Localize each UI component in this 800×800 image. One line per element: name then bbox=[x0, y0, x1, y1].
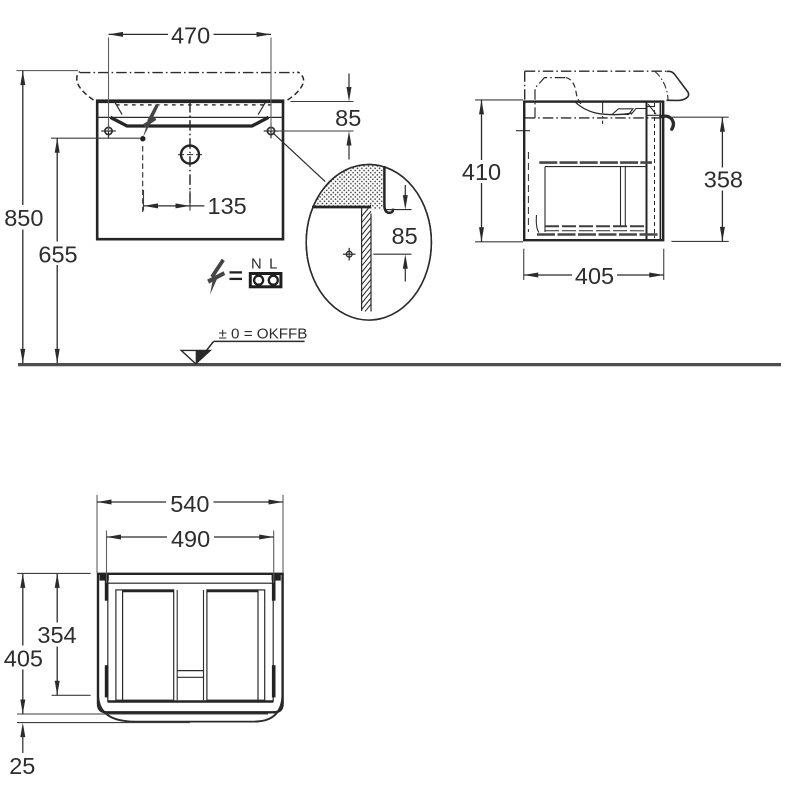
svg-text:85: 85 bbox=[392, 223, 418, 249]
svg-text:25: 25 bbox=[9, 753, 35, 779]
svg-text:470: 470 bbox=[171, 22, 210, 48]
svg-text:405: 405 bbox=[4, 645, 43, 671]
svg-text:135: 135 bbox=[208, 193, 247, 219]
svg-text:490: 490 bbox=[171, 526, 210, 552]
svg-text:± 0 = OKFFB: ± 0 = OKFFB bbox=[219, 326, 308, 343]
svg-text:540: 540 bbox=[170, 491, 209, 517]
svg-text:655: 655 bbox=[38, 242, 77, 268]
svg-text:L: L bbox=[269, 257, 277, 273]
svg-text:410: 410 bbox=[462, 159, 501, 185]
svg-text:358: 358 bbox=[704, 166, 743, 192]
svg-text:850: 850 bbox=[4, 205, 43, 231]
svg-text:85: 85 bbox=[335, 105, 361, 131]
svg-text:N: N bbox=[251, 257, 262, 273]
svg-text:405: 405 bbox=[575, 263, 614, 289]
svg-text:354: 354 bbox=[37, 622, 76, 648]
